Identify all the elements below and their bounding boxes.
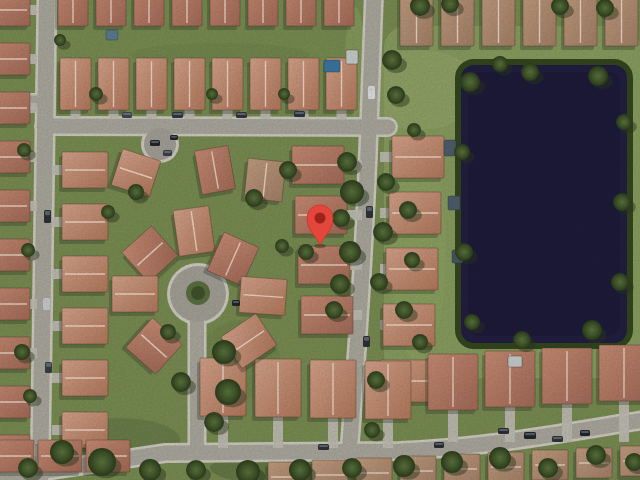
map-viewport[interactable] — [0, 0, 640, 480]
marker-pin-hole — [315, 213, 326, 224]
satellite-canvas[interactable] — [0, 0, 640, 480]
